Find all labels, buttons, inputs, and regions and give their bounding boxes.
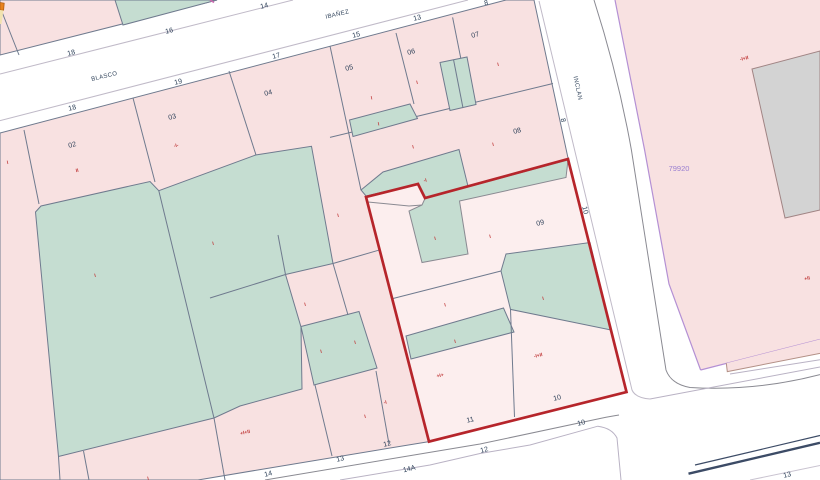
svg-text:79920: 79920 [669, 164, 690, 173]
